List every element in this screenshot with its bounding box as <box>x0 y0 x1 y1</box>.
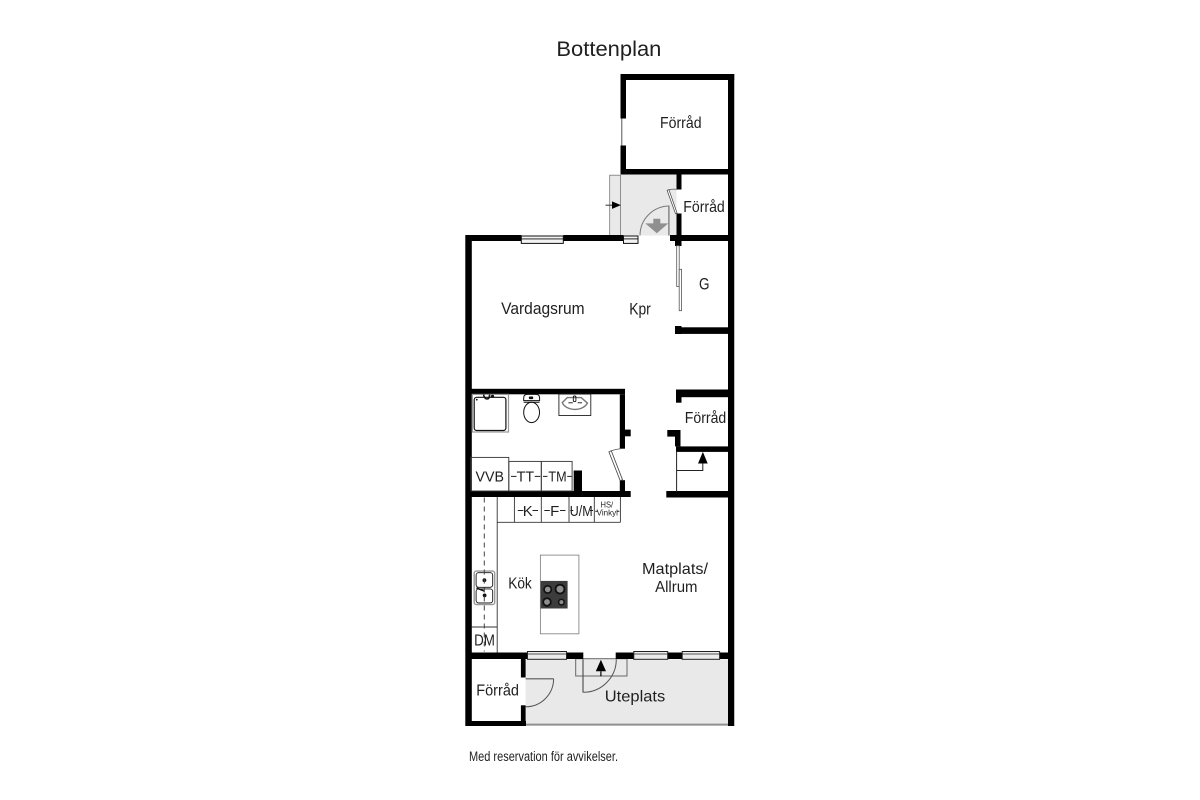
svg-text:Förråd: Förråd <box>685 409 727 427</box>
svg-text:Kök: Kök <box>508 575 532 592</box>
svg-text:U/M: U/M <box>570 503 593 520</box>
svg-text:K: K <box>523 503 533 520</box>
svg-text:G: G <box>699 275 710 294</box>
svg-text:Kpr: Kpr <box>629 300 651 319</box>
svg-text:Förråd: Förråd <box>683 198 725 216</box>
svg-text:VVB: VVB <box>476 469 505 486</box>
svg-text:Bottenplan: Bottenplan <box>556 38 661 61</box>
svg-text:Förråd: Förråd <box>660 114 702 132</box>
svg-text:Allrum: Allrum <box>655 579 697 596</box>
svg-text:Matplats/: Matplats/ <box>642 561 709 578</box>
svg-text:TM: TM <box>548 469 566 486</box>
svg-text:Med reservation för avvikelser: Med reservation för avvikelser. <box>469 749 618 764</box>
svg-text:TT: TT <box>517 469 535 486</box>
svg-text:Uteplats: Uteplats <box>605 689 665 706</box>
svg-text:Förråd: Förråd <box>476 682 519 700</box>
svg-text:DM: DM <box>474 633 495 650</box>
svg-text:F: F <box>550 503 559 520</box>
svg-text:Vardagsrum: Vardagsrum <box>501 299 585 318</box>
svg-text:Vinkyl: Vinkyl <box>597 508 619 517</box>
